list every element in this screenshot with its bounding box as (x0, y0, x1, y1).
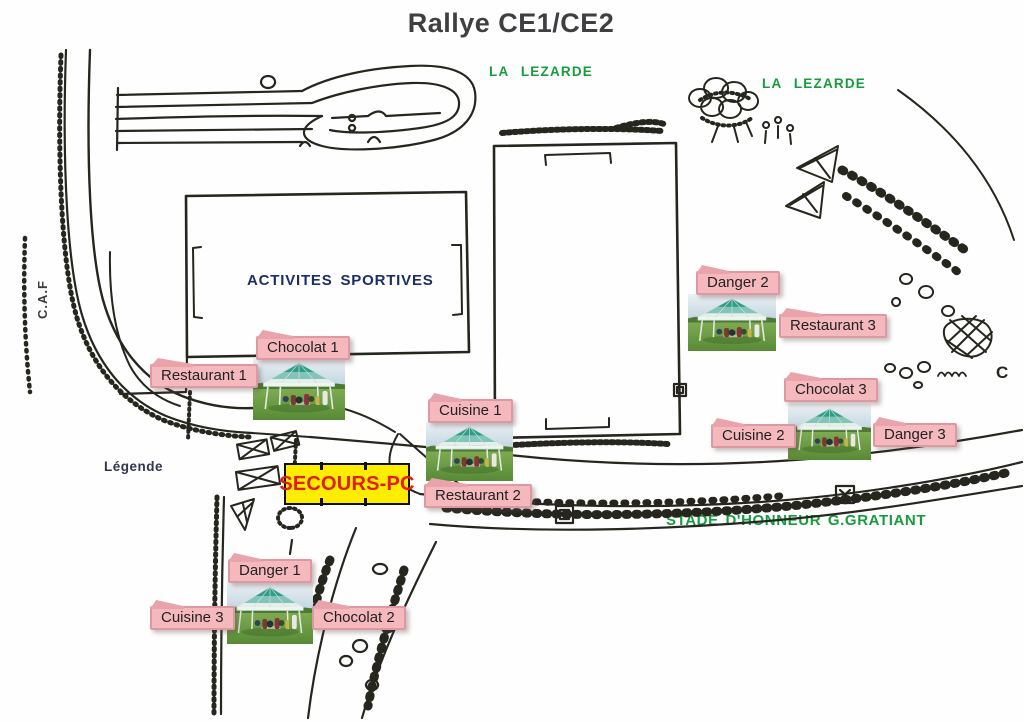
sports-field-2-sketch (494, 129, 680, 446)
tent-photo-5 (227, 582, 313, 644)
station-label-danger-3: Danger 3 (873, 423, 957, 447)
station-label-restaurant-3: Restaurant 3 (779, 314, 887, 338)
trees-and-bushes-sketch: C (616, 78, 1014, 388)
station-label-cuisine-3: Cuisine 3 (150, 606, 235, 630)
tent-photo-2 (426, 422, 513, 481)
tent-photo-1 (253, 358, 345, 420)
tent-photo-3 (688, 294, 776, 351)
station-label-restaurant-1: Restaurant 1 (150, 364, 258, 388)
station-label-danger-2: Danger 2 (696, 271, 780, 295)
rallye-map: C Rallye CE1/CE2 LA LEZARD (0, 0, 1024, 722)
first-aid-post-box: SECOURS-PC (284, 463, 410, 505)
main-road-sketch (310, 384, 1022, 530)
tent-photo-4 (788, 404, 871, 460)
svg-text:C: C (996, 363, 1008, 382)
station-label-chocolat-2: Chocolat 2 (312, 606, 406, 630)
station-label-restaurant-2: Restaurant 2 (424, 484, 532, 508)
tick-mark (364, 462, 367, 470)
karting-track-sketch (116, 66, 475, 150)
station-label-danger-1: Danger 1 (228, 559, 312, 583)
tick-mark (364, 498, 367, 506)
station-label-cuisine-2: Cuisine 2 (711, 424, 796, 448)
station-label-chocolat-1: Chocolat 1 (256, 336, 350, 360)
tick-mark (320, 462, 323, 470)
tick-mark (320, 498, 323, 506)
station-label-cuisine-1: Cuisine 1 (428, 399, 513, 423)
first-aid-post-label: SECOURS-PC (279, 473, 414, 496)
station-label-chocolat-3: Chocolat 3 (784, 378, 878, 402)
